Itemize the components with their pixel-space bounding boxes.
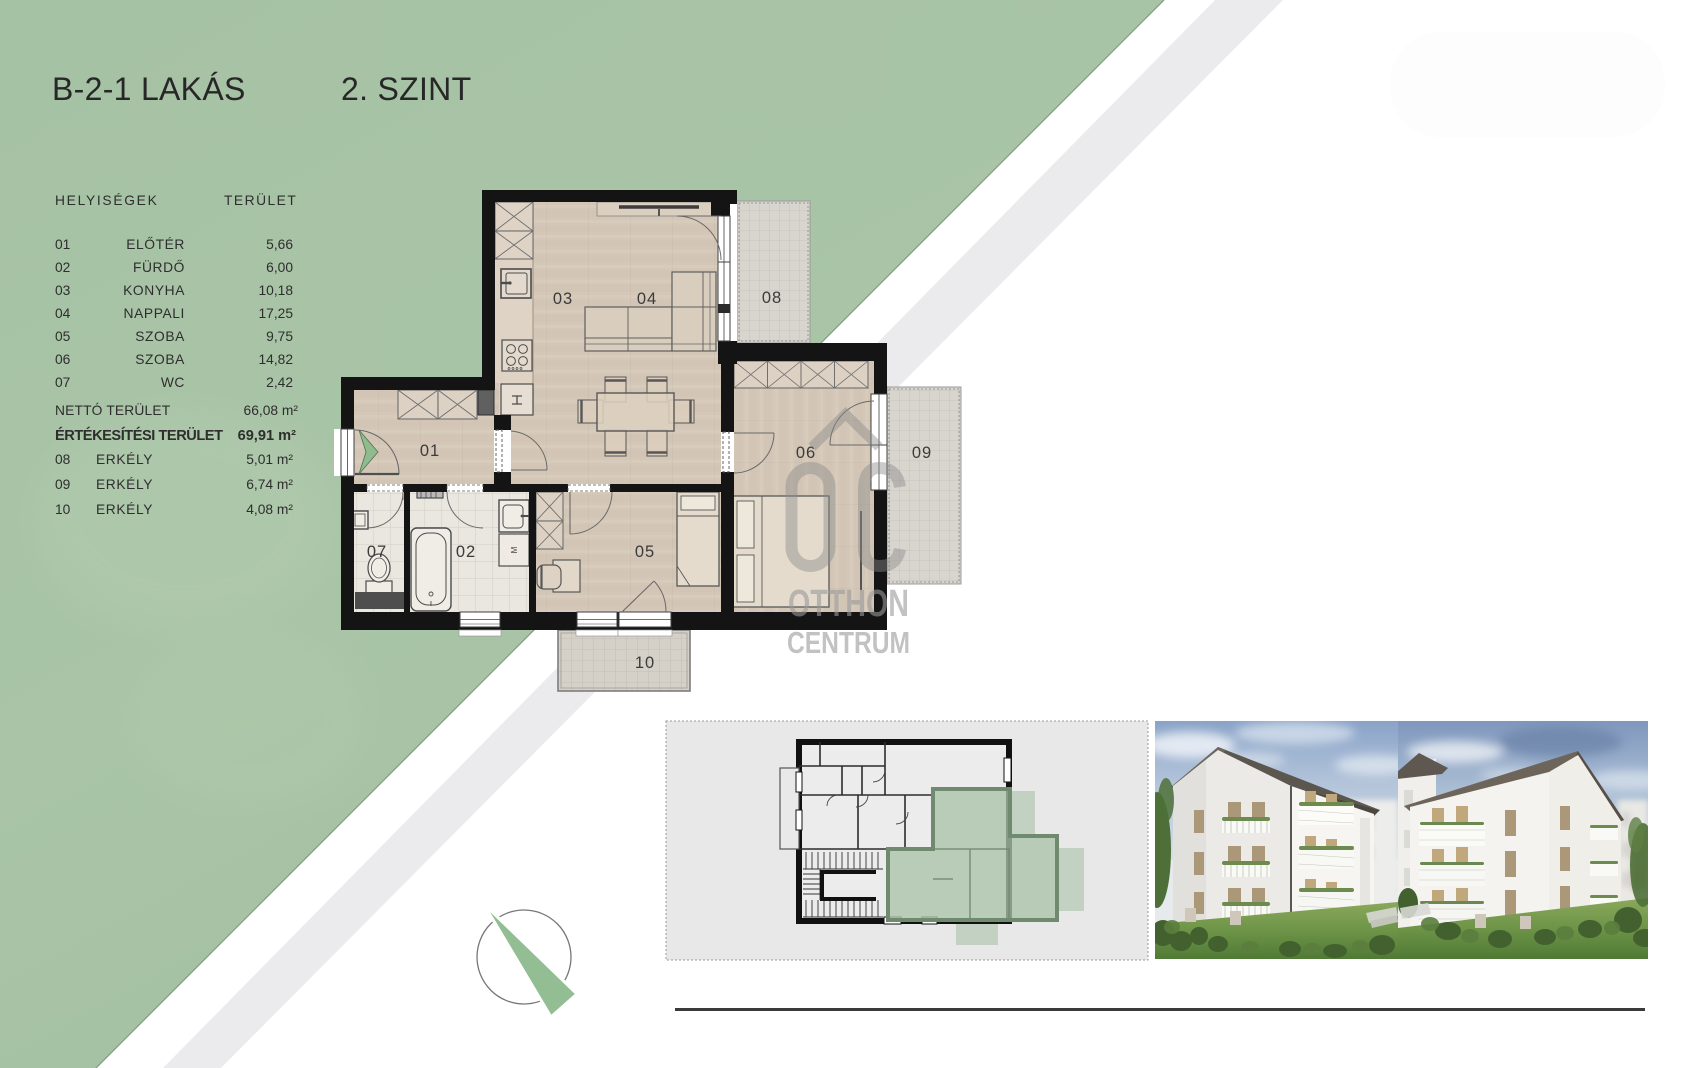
svg-text:66,08 m²: 66,08 m² xyxy=(244,403,299,418)
svg-text:08: 08 xyxy=(762,289,782,307)
svg-text:WC: WC xyxy=(161,375,185,390)
svg-text:69,91 m²: 69,91 m² xyxy=(238,428,297,444)
svg-text:NAPPALI: NAPPALI xyxy=(124,306,185,321)
svg-text:07: 07 xyxy=(367,543,387,561)
svg-text:2,42: 2,42 xyxy=(266,375,293,390)
svg-text:09: 09 xyxy=(55,477,71,492)
svg-text:04: 04 xyxy=(55,306,71,321)
svg-text:17,25: 17,25 xyxy=(258,306,293,321)
svg-text:05: 05 xyxy=(635,543,655,561)
svg-text:SZOBA: SZOBA xyxy=(135,352,185,367)
svg-text:ERKÉLY: ERKÉLY xyxy=(96,451,153,467)
svg-text:SZOBA: SZOBA xyxy=(135,329,185,344)
svg-text:CENTRUM: CENTRUM xyxy=(787,625,910,660)
svg-text:06: 06 xyxy=(55,352,71,367)
svg-text:ELŐTÉR: ELŐTÉR xyxy=(126,236,185,252)
svg-text:03: 03 xyxy=(55,283,71,298)
svg-text:FÜRDŐ: FÜRDŐ xyxy=(133,258,185,275)
svg-text:02: 02 xyxy=(456,543,476,561)
svg-text:02: 02 xyxy=(55,260,70,275)
svg-text:6,00: 6,00 xyxy=(266,260,293,275)
svg-text:01: 01 xyxy=(55,237,70,252)
svg-text:ERKÉLY: ERKÉLY xyxy=(96,501,153,517)
svg-text:4,08 m²: 4,08 m² xyxy=(246,502,293,517)
svg-text:HELYISÉGEK: HELYISÉGEK xyxy=(55,192,158,208)
svg-text:M: M xyxy=(510,546,519,553)
svg-text:6,74 m²: 6,74 m² xyxy=(246,477,293,492)
svg-text:KONYHA: KONYHA xyxy=(123,283,185,298)
svg-text:08: 08 xyxy=(55,452,71,467)
svg-text:ERKÉLY: ERKÉLY xyxy=(96,476,153,492)
svg-text:9,75: 9,75 xyxy=(266,329,293,344)
svg-text:09: 09 xyxy=(912,444,932,462)
svg-text:04: 04 xyxy=(637,290,657,308)
svg-text:ÉRTÉKESÍTÉSI TERÜLET: ÉRTÉKESÍTÉSI TERÜLET xyxy=(55,427,223,444)
svg-text:03: 03 xyxy=(553,290,573,308)
svg-text:NETTÓ TERÜLET: NETTÓ TERÜLET xyxy=(55,401,171,418)
svg-text:05: 05 xyxy=(55,329,71,344)
svg-text:14,82: 14,82 xyxy=(258,352,293,367)
svg-text:2. SZINT: 2. SZINT xyxy=(341,71,471,107)
svg-text:OTTHON: OTTHON xyxy=(788,583,909,625)
svg-text:10: 10 xyxy=(635,654,655,672)
svg-text:01: 01 xyxy=(420,442,440,460)
svg-text:B-2-1 LAKÁS: B-2-1 LAKÁS xyxy=(52,71,246,107)
svg-text:10: 10 xyxy=(55,502,71,517)
svg-text:5,66: 5,66 xyxy=(266,237,293,252)
svg-text:TERÜLET: TERÜLET xyxy=(224,191,297,208)
svg-text:5,01 m²: 5,01 m² xyxy=(246,452,293,467)
svg-text:07: 07 xyxy=(55,375,70,390)
svg-text:10,18: 10,18 xyxy=(258,283,293,298)
